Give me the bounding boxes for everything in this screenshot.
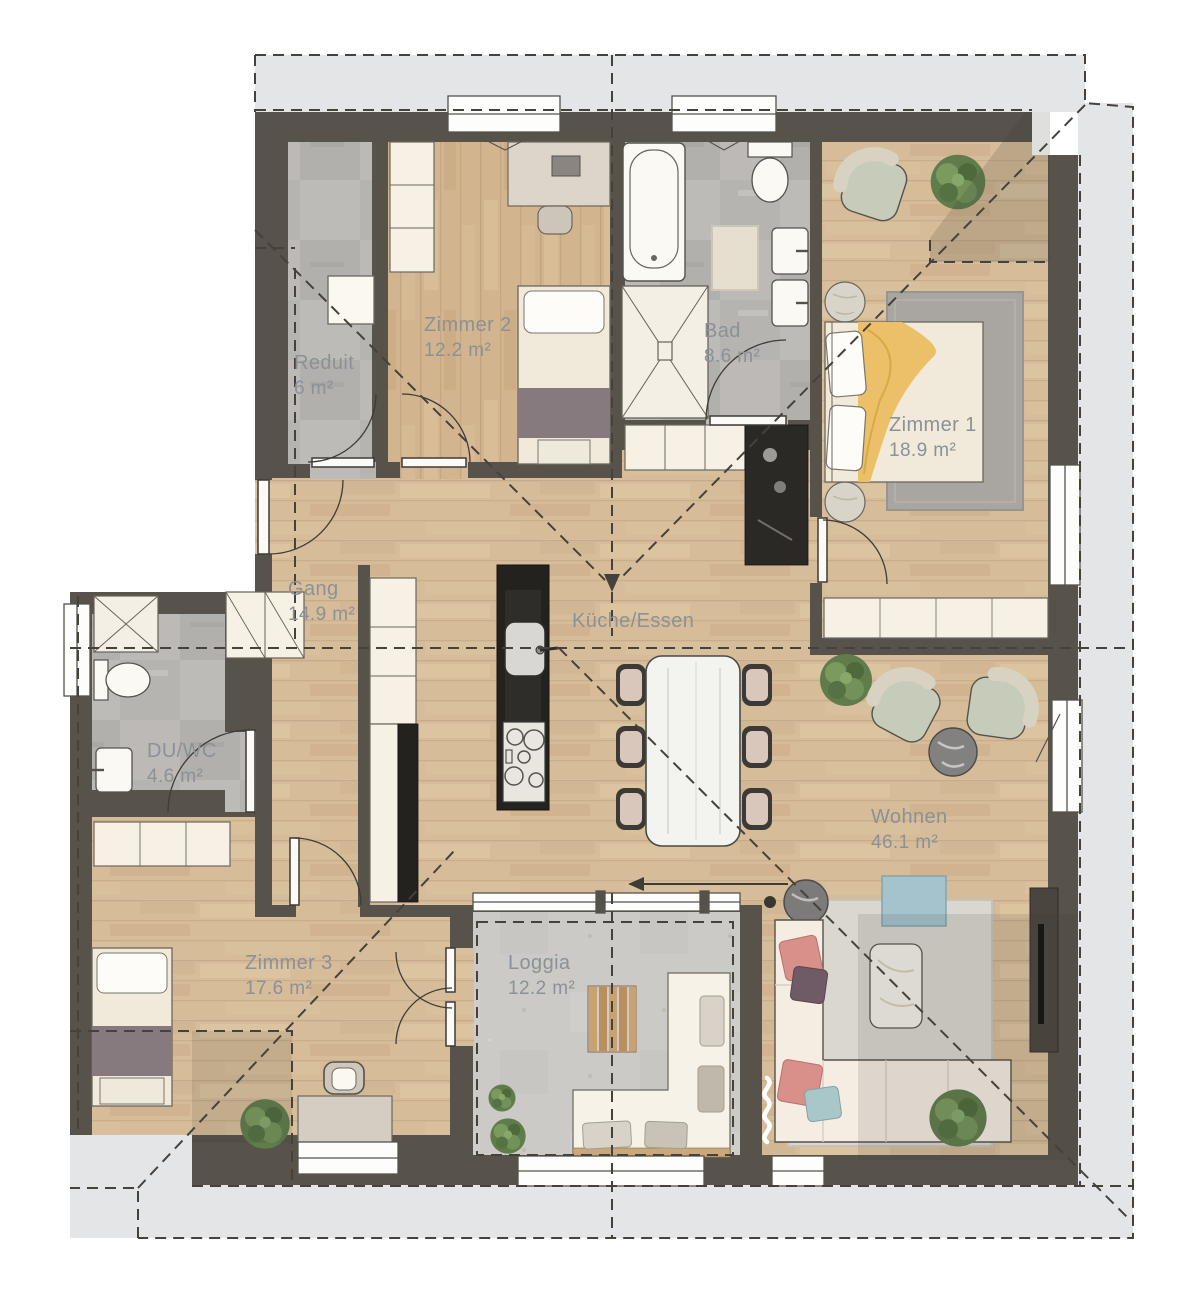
room-label-zimmer2: Zimmer 2 12.2 m² — [424, 312, 512, 363]
reduit-fixtures — [328, 276, 374, 324]
window-wohnen-south — [772, 1156, 824, 1186]
room-label-zimmer3: Zimmer 3 17.6 m² — [245, 950, 333, 1001]
shower-bad — [622, 286, 708, 418]
room-label-bad: Bad 8.6 m² — [704, 318, 760, 369]
kitchen-wall — [358, 565, 370, 907]
kitchen-tall-cabinets — [370, 578, 418, 902]
shower-duwc — [94, 596, 158, 652]
window-zimmer1-east — [1050, 465, 1080, 585]
bathtub — [623, 143, 685, 281]
loggia-glass-front — [473, 891, 740, 913]
window-zimmer3-south — [298, 1142, 398, 1174]
floor-plan-canvas: Reduit 6 m² Zimmer 2 12.2 m² Bad 8.6 m² … — [0, 0, 1200, 1298]
room-label-loggia: Loggia 12.2 m² — [508, 950, 575, 1001]
wardrobe-zimmer3 — [94, 822, 230, 866]
lowboard-zimmer1 — [824, 598, 1048, 638]
desk-chair — [538, 206, 572, 234]
room-label-duwc: DU/WC 4.6 m² — [147, 738, 217, 789]
plant-loggia-large — [490, 1118, 525, 1153]
room-label-kueche: Küche/Essen — [572, 608, 694, 634]
side-table-dark — [784, 880, 828, 924]
dining-table — [646, 656, 740, 846]
kitchen-island — [497, 565, 558, 810]
room-label-wohnen: Wohnen 46.1 m² — [871, 804, 948, 855]
room-label-reduit: Reduit 6 m² — [294, 350, 354, 401]
washing-machine — [328, 276, 374, 324]
throw-squiggle — [764, 1078, 769, 1142]
toilet-duwc — [94, 660, 150, 700]
room-label-gang: Gang 14.9 m² — [288, 576, 355, 627]
bath-mat — [712, 226, 758, 290]
side-table-marble — [929, 728, 977, 776]
dining-set — [616, 656, 772, 846]
floor-gang — [272, 478, 362, 905]
bed-zimmer2 — [518, 286, 610, 464]
floor-plan-drawing — [0, 0, 1200, 1298]
plant-loggia-small — [488, 1084, 515, 1111]
kitchen-hob — [503, 722, 545, 802]
nightstand-top — [825, 282, 865, 322]
plant-wohnen-top — [820, 654, 872, 706]
wardrobe — [390, 142, 434, 272]
room-label-zimmer1: Zimmer 1 18.9 m² — [889, 412, 977, 463]
bed-zimmer3 — [92, 948, 172, 1106]
nightstand-bottom — [825, 482, 865, 522]
desk-chair-zimmer3 — [324, 1062, 364, 1094]
sink-duwc — [92, 748, 132, 792]
